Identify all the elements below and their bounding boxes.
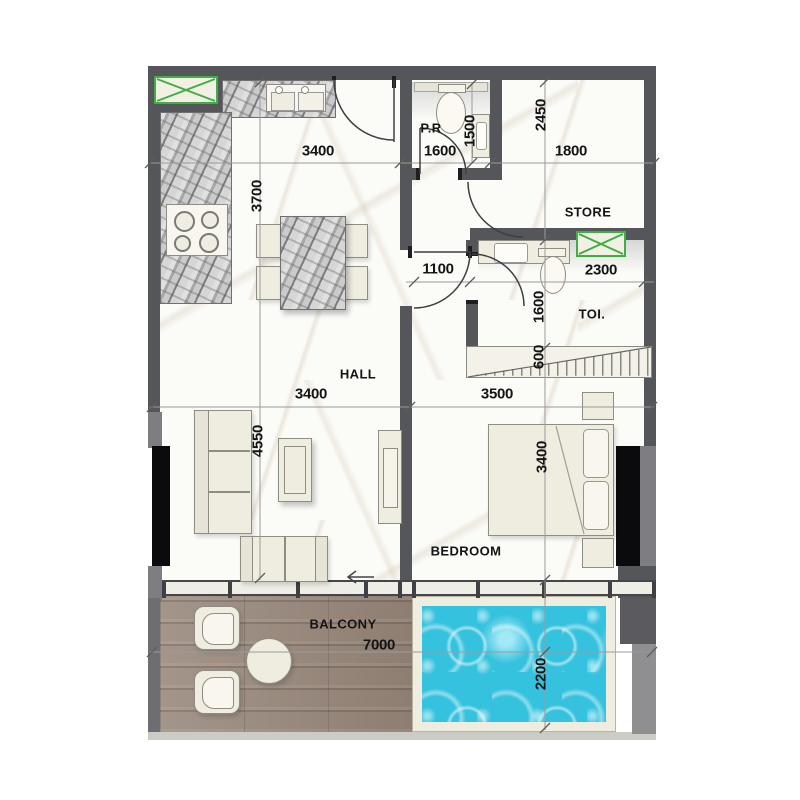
sink-basin-right [298,92,324,111]
sofa-armrest [315,537,327,581]
ac-unit [154,76,218,104]
dim-store-depth: 2450 [533,99,550,131]
dim-bedroom-depth: 3400 [534,441,551,473]
room-label-toilet: TOI. [579,307,606,322]
dim-kitchen-depth: 3700 [249,180,266,212]
wall-north [148,66,656,80]
sink-basin-left [271,92,295,111]
nightstand-bottom [582,538,614,568]
wall-west-pier-lower [148,566,162,600]
glass-mullion [228,582,232,598]
balcony-armchair [194,606,240,650]
wall-hall-divider-upper [400,180,412,250]
dining-chair [256,266,282,300]
pr-door-jamb-right [458,168,462,180]
balcony-round-table [246,638,292,684]
pillow [583,481,609,530]
ac-cross-icon [156,78,216,102]
dim-corridor-door: 1100 [422,261,453,278]
sofa-two-seat [240,536,328,582]
pr-door-jamb-left [416,168,420,180]
glass-mullion [398,582,402,598]
nightstand-top [582,392,614,420]
tv-console [378,430,402,524]
coffee-table-inner [284,446,306,494]
wall-balcony-west [148,598,160,732]
dim-pr-depth: 1500 [462,115,479,147]
dim-toilet-width: 2300 [585,262,617,279]
sink-faucet [275,86,283,94]
room-label-bedroom: BEDROOM [431,544,502,559]
balcony-armchair [194,670,240,714]
dining-table [280,216,346,310]
sliding-glass-wall [162,580,656,596]
dim-stair-width: 600 [531,345,548,369]
room-label-balcony: BALCONY [309,617,376,632]
ac-cross-icon [578,233,624,255]
stove-burner [174,211,195,232]
wall-west-upper [148,112,160,412]
tv-screen [383,448,398,508]
armchair-seat [202,677,234,709]
glass-mullion [412,582,416,598]
dim-pr-width: 1600 [424,143,456,160]
kitchen-sink [266,84,326,112]
dim-pool-depth: 2200 [533,658,550,690]
pillow [583,429,609,478]
window-bedroom [616,446,640,566]
sofa-backrest [195,411,209,533]
glass-mullion [652,582,656,598]
wall-pr-west [400,80,412,180]
room-label-hall: HALL [340,367,376,382]
coffee-table [278,438,312,502]
wall-southeast-step [632,644,656,734]
window-living-room [152,446,170,566]
glass-mullion [296,582,300,598]
toilet-door-jamb-bottom [466,300,478,304]
stove-burner [174,235,191,252]
room-label-powder-room: P.R [420,121,441,136]
glass-mullion [608,582,612,598]
dim-kitchen-width: 3400 [302,143,334,160]
glass-mullion [162,582,166,598]
toilet-basin [494,243,528,263]
stove-cooktop [166,204,228,256]
sofa-three-seat [194,410,252,534]
wall-store-west [490,80,502,180]
corridor-door-jamb-left [408,246,412,258]
dim-balcony-width: 7000 [363,637,395,654]
room-label-store: STORE [565,205,612,220]
dim-bedroom-width: 3500 [481,386,513,403]
bed [488,424,614,536]
ac-unit [576,231,626,257]
swimming-pool [422,606,606,722]
dining-chair [256,224,282,258]
stove-burner [199,233,219,253]
glass-mullion [476,582,480,598]
stairs-hatching [467,347,651,377]
toilet-door-jamb-top [466,252,478,256]
sofa-armrest [241,537,253,581]
glass-mullion [364,582,368,598]
dim-hall-width: 3400 [295,386,327,403]
wall-west-pier-upper [148,412,162,448]
armchair-seat [202,613,234,645]
dim-toilet-depth: 1600 [531,291,548,323]
wall-toilet-west-lower [466,304,478,348]
sofa-cushion-seam [284,537,286,581]
sofa-cushion-seam [208,491,250,493]
stairs [466,346,652,378]
glass-mullion [542,582,546,598]
wall-east-mid [640,446,656,566]
wall-southeast-block [620,598,656,644]
sink-faucet [301,86,309,94]
wall-east-upper [644,80,656,446]
dim-store-width: 1800 [555,143,587,160]
wall-toilet-north [470,228,656,240]
dim-living-depth: 4550 [250,425,267,457]
stove-burner [201,211,219,229]
balcony-slab-edge [148,732,656,740]
toilet-bowl [540,256,566,294]
sofa-cushion-seam [208,450,250,452]
entrance-door-jamb-right [392,76,396,88]
